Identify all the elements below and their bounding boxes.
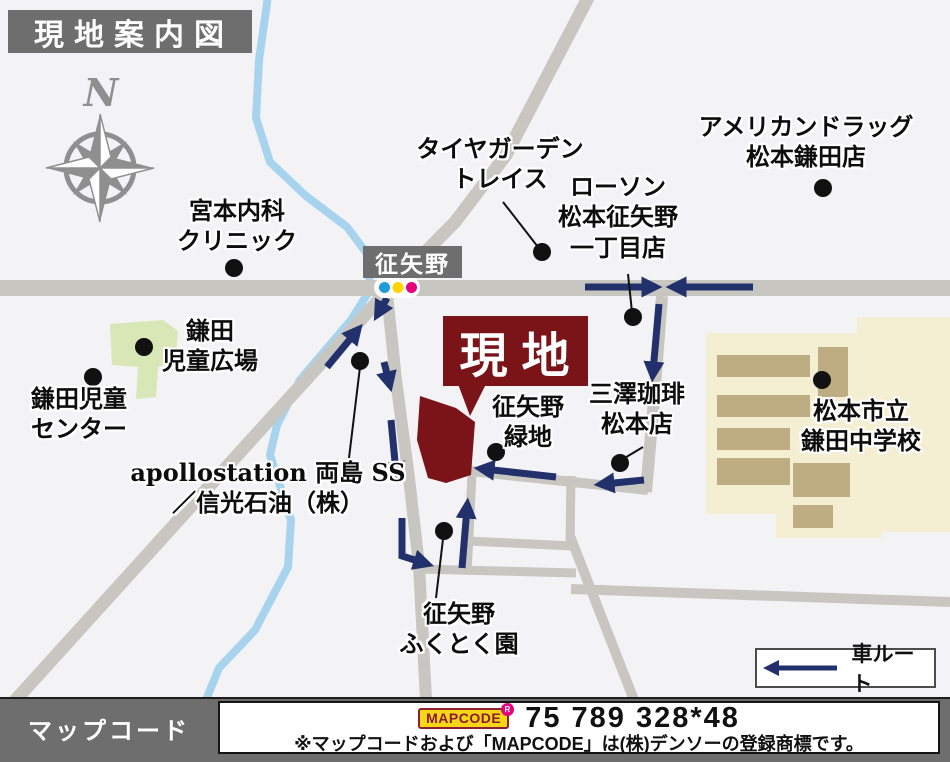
label-miyamoto-clinic: 宮本内科 クリニック [177, 196, 297, 257]
dot-tire-garden [533, 243, 551, 261]
label-apollostation: apollostation 両島 SS ／信光石油（株） [130, 458, 405, 519]
label-line: 宮本内科 [177, 196, 297, 226]
route-arrow-down1 [384, 362, 389, 382]
mapcode-number: 75 789 328*48 [525, 704, 740, 733]
label-line: 鎌田児童 [31, 384, 127, 414]
label-line: クリニック [177, 226, 297, 256]
label-kamada-center: 鎌田児童 センター [31, 384, 127, 445]
traffic-signal-icon [374, 277, 420, 298]
label-line: 松本市立 [801, 396, 921, 426]
label-line: 征矢野 [492, 392, 564, 422]
dot-lawson [624, 308, 642, 326]
dot-apollostation [351, 352, 369, 370]
label-misawa-coffee: 三澤珈琲 松本店 [589, 379, 685, 440]
site-parcel [417, 396, 475, 483]
label-line: 緑地 [492, 422, 564, 452]
mapcode-row: MAPCODE R 75 789 328*48 [418, 704, 740, 733]
label-line: 征矢野 [399, 599, 518, 629]
label-line: アメリカンドラッグ [699, 112, 914, 142]
compass-north-letter: N [83, 70, 120, 115]
label-line: 児童広場 [162, 346, 258, 376]
label-kamada-plaza: 鎌田 児童広場 [162, 316, 258, 377]
label-line: ローソン [558, 172, 678, 202]
mapcode-bar: マップコード MAPCODE R 75 789 328*48 ※マップコードおよ… [0, 697, 950, 762]
label-line: 松本征矢野 [558, 202, 678, 232]
street-grid-h2 [418, 569, 576, 573]
mapcode-bar-label: マップコード [0, 699, 218, 757]
label-soyano-green: 征矢野 緑地 [492, 392, 564, 453]
route-legend: 車ルート [755, 648, 936, 688]
signal-red-light [406, 282, 417, 293]
street-south-long [571, 589, 950, 602]
signal-blue-light [379, 282, 390, 293]
label-line: 一丁目店 [558, 233, 678, 263]
dot-fukutokuen [435, 522, 453, 540]
mapcode-logo: MAPCODE R [418, 708, 509, 729]
dot-kamada-plaza [135, 338, 153, 356]
label-line: 三澤珈琲 [589, 379, 685, 409]
street-grid-h1 [468, 541, 573, 546]
label-line: 鎌田中学校 [801, 426, 921, 456]
intersection-sign-soyano: 征矢野 [363, 246, 462, 278]
site-callout: 現地 [443, 316, 588, 386]
site-callout-tail [458, 384, 486, 416]
route-arrow-up-to-site [462, 508, 467, 568]
signal-yellow-light [393, 282, 404, 293]
street-diagonal-southeast [570, 536, 634, 697]
dot-american-drug [814, 179, 832, 197]
label-line: タイヤガーデン [416, 134, 583, 164]
car-route-arrow-icon [757, 660, 840, 676]
mapcode-trademark-note: ※マップコードおよび「MAPCODE」は(株)デンソーの登録商標です。 [294, 735, 864, 755]
label-junior-high: 松本市立 鎌田中学校 [801, 396, 921, 457]
route-arrow-west1 [604, 480, 644, 484]
page-title: 現地案内図 [8, 10, 252, 53]
mapcode-logo-text: MAPCODE [426, 710, 501, 726]
registered-trademark-icon: R [501, 703, 514, 716]
label-line: 松本鎌田店 [699, 142, 914, 172]
label-lawson: ローソン 松本征矢野 一丁目店 [558, 172, 678, 263]
label-fukutokuen: 征矢野 ふくとく園 [399, 599, 518, 660]
site-guide-map: N [0, 0, 950, 762]
label-american-drug: アメリカンドラッグ 松本鎌田店 [699, 112, 914, 173]
compass-rose: N [46, 70, 154, 222]
dot-junior-high [813, 371, 831, 389]
label-line: 松本店 [589, 409, 685, 439]
label-line: apollostation 両島 SS [130, 458, 405, 488]
label-line: 鎌田 [162, 316, 258, 346]
label-line: ／信光石油（株） [130, 488, 405, 518]
label-line: ふくとく園 [399, 629, 518, 659]
mapcode-panel: MAPCODE R 75 789 328*48 ※マップコードおよび「MAPCO… [218, 701, 940, 754]
dot-miyamoto-clinic [225, 259, 243, 277]
route-legend-label: 車ルート [852, 638, 935, 698]
label-line: センター [31, 414, 127, 444]
dot-misawa-coffee [611, 454, 629, 472]
